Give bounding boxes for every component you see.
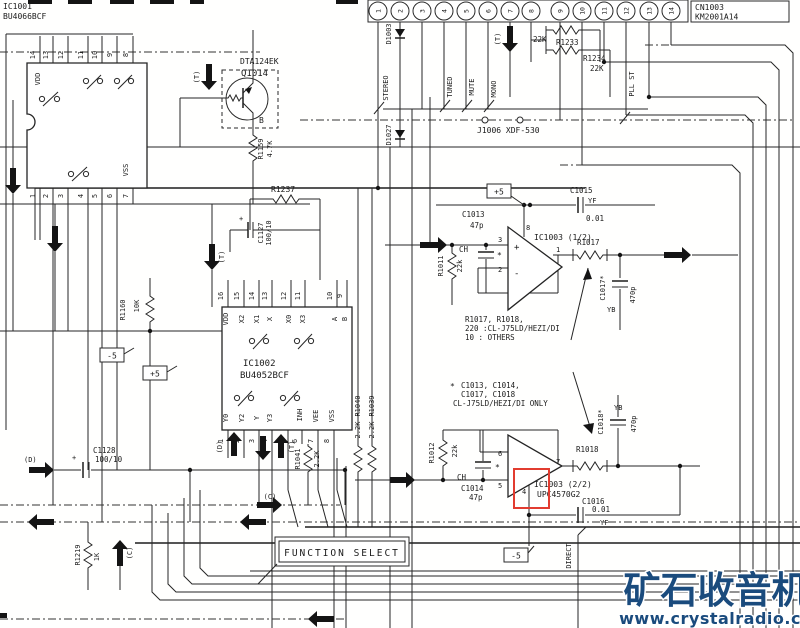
ic1002-pin: 8 <box>323 439 331 443</box>
opamp2-pin6: 6 <box>498 450 502 458</box>
ic1001-pin: 12 <box>57 51 65 59</box>
c-flag: (C) <box>264 493 277 501</box>
ic1002-pin: 16 <box>217 292 225 300</box>
c1127-value: 100/10 <box>265 220 273 245</box>
j1006-label: J1006 XDF-530 <box>477 126 540 135</box>
connector-pin-number: 1 <box>375 9 383 13</box>
r1234-ref: R1234 <box>583 54 606 63</box>
capacitor-c1014: * CH C1014 47p <box>457 462 500 502</box>
r1012-value: 22k <box>451 444 459 457</box>
diode-d1003: D1003 <box>385 23 405 44</box>
r1011-ref: R1011 <box>437 255 445 276</box>
r1039-value: 2.2K <box>368 421 376 439</box>
connector-pin-number: 11 <box>601 7 609 15</box>
r1041-value: 2.2K <box>313 450 321 468</box>
r1039-ref: R1039 <box>368 395 376 416</box>
c1015-value: 0.01 <box>586 214 604 223</box>
resistor-r1012: R1012 22k <box>428 438 459 468</box>
schematic-canvas: 1 2 3 4 5 6 7 8 9 10 11 12 13 14 CN1003 … <box>0 0 800 628</box>
note-r1017-r1018: R1017, R1018, 220 :CL-J75LD/HEZI/DI 10 :… <box>465 315 560 342</box>
r1159-value: 4.7K <box>266 140 274 158</box>
ic1002-multiplexer: 16 15 14 13 12 11 10 9 VDD X2 X1 X X0 X3… <box>217 292 352 443</box>
capacitor-c1128: + C1128 100/10 <box>72 446 123 478</box>
top-connector: 1 2 3 4 5 6 7 8 9 10 11 12 13 14 CN1003 … <box>368 0 789 22</box>
star-mark: * <box>495 463 500 472</box>
c1013-value: 47p <box>470 221 484 230</box>
ic1002-pin: 7 <box>307 439 315 443</box>
resistor-r1039: 2.2K R1039 <box>368 395 376 474</box>
ic1002-pin-label: INH <box>296 409 304 422</box>
d-flag: (D) <box>24 456 37 464</box>
resistor-r1018: R1018 <box>575 445 605 470</box>
r1219-ref: R1219 <box>74 544 82 565</box>
opamp1-pin8: 8 <box>526 224 530 232</box>
opamp2-ref: IC1003 (2/2) <box>534 480 592 489</box>
arrow-down-t-q1014 <box>201 64 217 90</box>
star-mark: * <box>450 382 455 391</box>
ic1002-pin: 14 <box>248 292 256 300</box>
ic1002-pin: 13 <box>261 292 269 300</box>
ic1002-pin-label: Y0 <box>222 414 230 422</box>
c1128-value: 100/10 <box>95 455 123 464</box>
ic1002-pin: 9 <box>336 294 344 298</box>
watermark-title: 矿石收音机 <box>624 569 800 612</box>
ic1001-analog-switch: IC1001 BU4066BCF 14 13 12 11 10 9 8 VDD … <box>3 2 147 198</box>
r1160-ref: R1160 <box>119 299 127 320</box>
ic1002-pin-label: X3 <box>299 315 307 323</box>
connector-pin-number: 10 <box>579 7 587 15</box>
ic1001-pin: 2 <box>42 194 50 198</box>
ic1001-pin: 9 <box>106 53 114 57</box>
r1011-value: 22k <box>456 259 464 272</box>
ic1002-pin: 10 <box>326 292 334 300</box>
power-flag-minus5-left: -5 <box>100 348 134 362</box>
minus5-label: -5 <box>511 552 521 561</box>
ic1001-pin: 1 <box>29 194 37 198</box>
mono-label: MONO <box>490 81 498 98</box>
ic1001-pin: 6 <box>106 194 114 198</box>
c1014-value: 47p <box>469 493 483 502</box>
q1014-part: DTA124EK <box>240 57 279 66</box>
c1013-ref: C1013 <box>462 210 485 219</box>
note2-line3: CL-J75LD/HEZI/DI ONLY <box>453 399 548 408</box>
arrow-right-opamp1-out <box>664 247 691 263</box>
t-flag: (T) <box>494 33 502 46</box>
c1016-value: 0.01 <box>592 505 610 514</box>
pll-st-label: PLL ST <box>628 71 636 97</box>
arrow-up-t-ic1002 <box>273 434 289 458</box>
c1018-value: 470p <box>630 416 638 433</box>
r1012-ref: R1012 <box>428 442 436 463</box>
c1017-value: 470p <box>629 287 637 304</box>
ch-label: CH <box>459 245 469 254</box>
ic1001-part: BU4066BCF <box>3 12 47 21</box>
r1237-ref: R1237 <box>271 185 295 194</box>
resistor-r1160: R1160 10K <box>119 294 154 324</box>
arrow-right-d <box>29 462 54 478</box>
opamp1-minus: - <box>514 269 519 279</box>
ic1002-pin-label: X0 <box>285 315 293 323</box>
r1160-value: 10K <box>133 299 141 312</box>
c1017-ref: C1017* <box>599 275 607 300</box>
q1014-transistor: DTA124EK Q1014 B <box>222 57 279 128</box>
c1018-marking: YB <box>614 404 622 412</box>
arrow-left-2 <box>240 514 266 530</box>
ic1001-ref: IC1001 <box>3 2 32 11</box>
q1014-terminal-b: B <box>259 116 264 125</box>
ic1002-pin-label: VSS <box>328 410 336 423</box>
resistor-r1011: R1011 22k <box>437 251 464 281</box>
note1-line1: R1017, R1018, <box>465 315 524 324</box>
capacitor-c1017: C1017* 470p YB <box>599 275 637 314</box>
c1014-ref: C1014 <box>461 484 484 493</box>
mute-label: MUTE <box>468 79 476 96</box>
r1159-ref: R1159 <box>257 138 265 159</box>
ic1001-pin: 14 <box>29 51 37 59</box>
ic1002-pin: 15 <box>233 292 241 300</box>
note1-line3: 10 : OTHERS <box>465 333 515 342</box>
r1018-ref: R1018 <box>576 445 599 454</box>
ic1002-pin-label: B <box>341 317 349 321</box>
d-flag: (D) <box>216 441 224 454</box>
ic1002-pin-label: VDD <box>222 313 230 326</box>
watermark-url: www.crystalradio.cn <box>619 609 800 628</box>
opamp1-ic1003a: + - 3 2 8 1 IC1003 (1/2) <box>498 224 592 310</box>
connector-pin-number: 3 <box>419 9 427 13</box>
ic1001-pin: 10 <box>91 51 99 59</box>
connector-pin-number: 8 <box>528 9 536 13</box>
ic1001-pin: 13 <box>42 51 50 59</box>
d1027-ref: D1027 <box>385 124 393 145</box>
ic1001-vdd-label: VDD <box>34 73 42 86</box>
note2-line2: C1017, C1018 <box>461 390 516 399</box>
opamp2-pin7: 7 <box>556 458 560 466</box>
resistor-r1040: 2.2K R1040 <box>354 395 362 474</box>
ic1002-pin-label: VEE <box>312 410 320 423</box>
resistor-r1219: R1219 1K <box>74 540 101 570</box>
c1017-marking: YB <box>607 306 615 314</box>
watermark: 矿石收音机 www.crystalradio.cn <box>619 569 800 628</box>
t-flag: (T) <box>288 441 296 454</box>
ic1002-pin: 3 <box>248 439 256 443</box>
resistor-r1233: 22K R1233 <box>533 26 581 47</box>
ic1001-pin: 8 <box>122 53 130 57</box>
ic1002-pin-label: X1 <box>253 315 261 323</box>
power-flag-minus5-opamp2: -5 <box>504 548 528 562</box>
ic1001-pin: 5 <box>91 194 99 198</box>
function-select-label: FUNCTION SELECT <box>284 548 400 559</box>
power-flag-plus5-left: +5 <box>143 366 177 380</box>
star-mark: * <box>497 251 502 260</box>
connector-pin-number: 5 <box>463 9 471 13</box>
opamp1-plus: + <box>514 243 520 253</box>
arrow-right-opamp2-in <box>390 472 415 488</box>
connector-pin-number: 13 <box>646 7 654 15</box>
note1-line2: 220 :CL-J75LD/HEZI/DI <box>465 324 560 333</box>
r1219-value: 1K <box>93 552 101 561</box>
opamp2-pin5: 5 <box>498 482 502 490</box>
opamp1-pin1: 1 <box>556 246 560 254</box>
arrow-down-t-connector <box>502 26 518 52</box>
arrow-right-opamp1-in <box>420 237 447 253</box>
connector-pin-number: 9 <box>557 9 565 13</box>
plus5-label: +5 <box>150 370 160 379</box>
polarity-plus: + <box>72 454 76 462</box>
minus5-label: -5 <box>107 352 117 361</box>
connector-part: KM2001A14 <box>695 13 739 22</box>
opamp2-pin4: 4 <box>522 488 526 496</box>
ic1002-pin: 12 <box>280 292 288 300</box>
connector-pin-number: 6 <box>485 9 493 13</box>
opamp1-pin3: 3 <box>498 236 502 244</box>
ic1002-pin-label: Y2 <box>238 414 246 422</box>
c1018-ref: C1018* <box>597 409 605 434</box>
direct-label: DIRECT <box>565 543 573 569</box>
r1233-value: 22K <box>533 35 547 44</box>
ic1002-part: BU4052BCF <box>240 371 289 381</box>
diode-d1027: D1027 <box>385 124 405 145</box>
schematic-page: 1 2 3 4 5 6 7 8 9 10 11 12 13 14 CN1003 … <box>0 0 800 628</box>
r1234-value: 22K <box>590 64 604 73</box>
connector-pin-number: 4 <box>441 9 449 13</box>
tuned-label: TUNED <box>446 76 454 97</box>
resistor-r1017: R1017 <box>575 238 605 259</box>
arrow-left-bottom <box>308 611 334 627</box>
ic1002-ref: IC1002 <box>243 359 276 369</box>
ic1001-pin: 3 <box>57 194 65 198</box>
t-flag: (T) <box>193 71 201 84</box>
note-cl-caps: * C1013, C1014, C1017, C1018 CL-J75LD/HE… <box>450 381 548 408</box>
ic1002-pin: 11 <box>294 292 302 300</box>
d1003-ref: D1003 <box>385 23 393 44</box>
connector-pin-number: 14 <box>668 7 676 15</box>
ch-label: CH <box>457 473 467 482</box>
r1040-value: 2.2K <box>354 421 362 439</box>
c1015-ref: C1015 <box>570 186 593 195</box>
resistor-r1159: R1159 4.7K <box>249 133 274 163</box>
arrow-down-left <box>47 226 63 252</box>
capacitor-c1013: C1013 47p CH * <box>459 210 502 260</box>
ic1001-pin: 7 <box>122 194 130 198</box>
stereo-label: STEREO <box>382 75 390 100</box>
r1040-ref: R1040 <box>354 395 362 416</box>
opamp1-pin2: 2 <box>498 266 502 274</box>
arrow-left-1 <box>28 514 54 530</box>
ic1002-pin-label: X2 <box>238 315 246 323</box>
c1127-ref: C1127 <box>257 222 265 243</box>
note2-line1: C1013, C1014, <box>461 381 520 390</box>
connector-ref: CN1003 <box>695 3 724 12</box>
c-flag: (C) <box>126 547 134 560</box>
opamp2-part: UPC4570G2 <box>537 490 581 499</box>
polarity-plus: + <box>239 215 243 223</box>
t-flag: (T) <box>218 251 226 264</box>
connector-pin-number: 2 <box>397 9 405 13</box>
plus5-label: +5 <box>494 188 504 197</box>
arrow-down <box>5 168 21 194</box>
c1015-marking: YF <box>588 197 596 205</box>
c1016-marking: YF <box>600 519 608 527</box>
c1128-ref: C1128 <box>93 446 116 455</box>
power-flag-plus5-opamp1: +5 <box>487 184 524 205</box>
r1233-ref: R1233 <box>556 38 579 47</box>
ic1001-pin: 4 <box>77 194 85 198</box>
r1017-ref: R1017 <box>577 238 600 247</box>
ic1001-vss-label: VSS <box>122 164 130 177</box>
ic1001-pin: 11 <box>77 51 85 59</box>
ic1002-pin-label: Y3 <box>266 414 274 422</box>
connector-pin-number: 12 <box>623 7 631 15</box>
connector-pin-number: 7 <box>507 9 515 13</box>
